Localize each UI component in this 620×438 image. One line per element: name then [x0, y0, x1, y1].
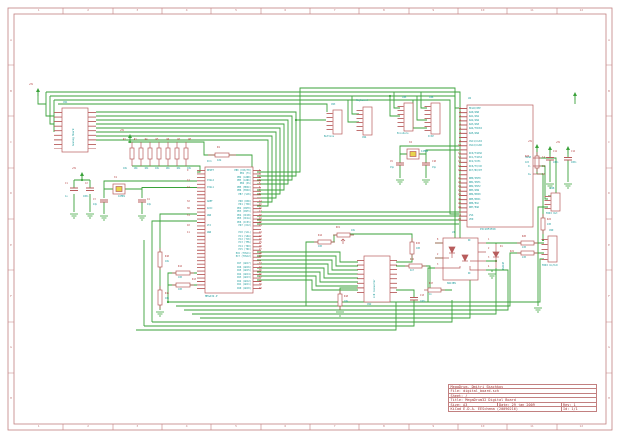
r14-ref: R14	[318, 235, 322, 237]
r20-ref: R20	[522, 236, 526, 238]
u1-pin8: 8	[437, 239, 438, 241]
resistor[interactable]	[166, 148, 170, 159]
x2-value: 12MHz	[421, 151, 428, 153]
c10-ref: C10	[432, 161, 436, 163]
r12-ref: R12	[178, 266, 182, 268]
resistor-r1[interactable]	[215, 153, 229, 157]
resistor-row-values: 10k10k10k10k10k10k10k	[123, 167, 191, 170]
crystal-x2[interactable]	[407, 149, 419, 159]
u1-pin2: 2	[437, 254, 438, 256]
title-block-rev: Rev: 1	[561, 403, 597, 407]
c13-ref: C13	[420, 295, 424, 297]
wire[interactable]	[257, 88, 459, 224]
plus5v-symbol[interactable]	[566, 146, 570, 154]
title-block-size: Size: A3	[451, 403, 497, 407]
u1-pin3: 3	[437, 264, 438, 266]
r13-ref: R13	[192, 279, 196, 281]
ic1-ref: IC1	[207, 161, 212, 164]
rv1-ref: RV1	[336, 227, 340, 229]
resistor[interactable]	[157, 148, 161, 159]
gnd-symbol[interactable]	[422, 180, 430, 184]
wire[interactable]	[257, 234, 452, 310]
plus5v-label: +5V	[72, 168, 76, 170]
r18-ref: R18	[344, 296, 348, 298]
r21-ref: R21	[510, 251, 514, 253]
cn5-value: Encoders	[397, 133, 409, 135]
u1-pin4r: 4	[488, 266, 489, 268]
c2-value: 100n	[83, 196, 88, 198]
resistor-r11[interactable]	[158, 290, 162, 305]
r17-ref: R17	[429, 283, 433, 285]
x1-ref: X1	[114, 177, 117, 179]
c3-value: 22p	[93, 204, 97, 206]
c9-ref: C9	[390, 161, 393, 163]
connector-cn5[interactable]	[404, 103, 413, 131]
gnd-symbol[interactable]	[156, 312, 164, 316]
connector-cn6[interactable]	[431, 103, 440, 134]
r10-value: 10k	[165, 261, 169, 263]
d1-value: 1N4148	[503, 262, 505, 270]
resistor-r20[interactable]	[521, 241, 534, 245]
cn1-ref: CN1	[63, 102, 67, 104]
zone-columns-bottom: 123456789101112	[14, 424, 606, 430]
r16-value: 4k7	[410, 270, 414, 272]
c12-ref: C12	[571, 151, 575, 153]
ic1-pin-numbers-right: 1234567814151617181920212223242526272829…	[259, 169, 269, 290]
rv1-value: 10k	[351, 230, 355, 232]
resistor[interactable]	[139, 148, 143, 159]
u1-value: 6N138N	[447, 283, 456, 285]
cn6-ref: CN6	[429, 97, 433, 99]
c4-ref: C4	[147, 199, 150, 201]
c4-value: 22p	[147, 204, 151, 206]
resistor-r18[interactable]	[338, 294, 342, 306]
title-block: MegaDrum, Dmitri Skachkov File: digital_…	[448, 384, 597, 412]
resistor[interactable]	[175, 148, 179, 159]
resistor[interactable]	[184, 148, 188, 159]
resistor-r16[interactable]	[409, 264, 422, 268]
plus5v-symbol[interactable]	[36, 88, 40, 96]
r1-ref: R1	[217, 147, 220, 149]
r22-value: 220	[547, 224, 551, 226]
zone-rows-right: ABCDEFGH	[606, 14, 612, 424]
ic1-pin-names-right: PB0 (XCK/T0)PB1 (T1)PB2 (AIN0)PB3 (AIN1)…	[207, 169, 251, 290]
connector-cn4[interactable]	[363, 107, 372, 135]
trimpot-rv1[interactable]	[337, 233, 350, 237]
title-block-tool-id: KiCad E.D.A. EESchema (20090216) Id: 1/1	[449, 407, 596, 412]
plus5v-symbol[interactable]	[80, 172, 84, 180]
gnd-symbol[interactable]	[70, 214, 78, 218]
plus5v-label: +5V	[556, 142, 560, 144]
c13-value: 100n	[420, 301, 425, 303]
c9-value: 15p	[390, 167, 394, 169]
r22-ref: R22	[547, 219, 551, 221]
u2-pin-numbers-right: 141516	[542, 107, 552, 223]
cn4-value: Keyboard	[356, 100, 368, 102]
cn2-ref: CN2	[367, 304, 371, 306]
cn2-value: LCD Connector	[374, 279, 376, 298]
plus5v-label: +5V	[29, 84, 33, 86]
zone-rows-left: ABCDEFGH	[8, 14, 14, 424]
u1-nc-bottom: NC	[468, 273, 471, 275]
r1-value: 10k	[217, 160, 221, 162]
c2-ref: C2	[85, 183, 88, 185]
junction-dot	[295, 119, 297, 121]
cn1-value: Analog Board	[73, 129, 75, 146]
u1-ref: U1	[452, 232, 455, 234]
u2-pin-names-right: VUSBD-D+	[487, 107, 531, 223]
r11-ref: R11	[165, 293, 169, 295]
c3-ref: C3	[93, 199, 96, 201]
c11-ref: C11	[553, 151, 557, 153]
c1-ref: C1	[65, 183, 68, 185]
r11-value: 10k	[165, 298, 169, 300]
resistor-row-refs: R2R3R4R5R6R7R8	[123, 138, 191, 141]
gnd-symbol[interactable]	[138, 216, 146, 220]
resistor-r21[interactable]	[521, 251, 534, 255]
c12-value: 100n	[571, 162, 576, 164]
title-block-date: Date: 29 jan 2009	[497, 403, 561, 407]
cn3-ref: CN3	[331, 104, 335, 106]
gnd-symbol[interactable]	[396, 180, 404, 184]
r13-value: 100	[178, 289, 182, 291]
ic1-pin-numbers-left: 912133230311011	[187, 169, 196, 290]
r23-ref: R23	[525, 156, 529, 158]
u1-nc-top: NC	[468, 240, 471, 242]
c11-value: 100n	[553, 162, 558, 164]
r15-value: 100	[416, 248, 420, 250]
r23-value: 1k5	[525, 162, 529, 164]
r14-value: 100	[318, 246, 322, 248]
r16-ref: R16	[410, 259, 414, 261]
u2-pin-numbers-left: 123456791011121317182122232425262728820	[449, 107, 461, 223]
gnd-symbol[interactable]	[534, 308, 542, 312]
plus5v-label: +5V	[528, 141, 532, 143]
d1-diode[interactable]	[493, 244, 499, 268]
resistor-r17[interactable]	[428, 288, 441, 292]
r18-value: 10k	[344, 301, 348, 303]
plus5v-symbol[interactable]	[573, 92, 577, 100]
resistor[interactable]	[130, 148, 134, 159]
gnd-symbol[interactable]	[564, 184, 572, 188]
cn8-ref: CN8	[550, 188, 554, 190]
x2-ref: X2	[409, 142, 412, 144]
resistor-r10[interactable]	[158, 252, 162, 267]
u2-ref: U2	[468, 98, 471, 101]
u1-optocoupler[interactable]	[435, 238, 486, 280]
resistor-r15[interactable]	[410, 242, 414, 254]
schematic-sheet: 123456789101112 123456789101112 ABCDEFGH…	[0, 0, 620, 438]
junction-dot	[389, 95, 391, 97]
x1-value: 16MHz	[118, 196, 125, 198]
connector-cn3[interactable]	[333, 110, 342, 134]
cn3-value: Buttons	[324, 136, 334, 138]
cn9-value: MIDI In/Out	[542, 265, 558, 267]
resistor-r14[interactable]	[318, 240, 331, 244]
cn6-value: ICSP	[428, 136, 434, 138]
plus5v-label: +5V	[120, 130, 124, 132]
crystal-x1[interactable]	[113, 184, 125, 194]
gnd-symbol[interactable]	[100, 216, 108, 220]
zone-columns-top: 123456789101112	[14, 8, 606, 14]
c1-value: 1u	[65, 196, 68, 198]
cn9-ref: CN9	[549, 230, 553, 232]
cn4-ref: CN4	[362, 137, 366, 139]
r10-ref: R10	[165, 256, 169, 258]
ic1-value: MEGA32-P	[205, 296, 218, 299]
resistor[interactable]	[148, 148, 152, 159]
r21-value: 220	[522, 257, 526, 259]
plus5v-symbol[interactable]	[535, 144, 539, 152]
title-block-tool: KiCad E.D.A. EESchema (20090216)	[451, 407, 561, 412]
junction-dot	[167, 301, 169, 303]
u1-pin3r: 3	[488, 257, 489, 259]
cn5-ref: CN5	[402, 97, 406, 99]
connector-cn9[interactable]	[548, 236, 557, 262]
c10-value: 15p	[432, 167, 436, 169]
u2-value: PIC18F2550	[480, 229, 496, 232]
r17-value: 1k	[429, 294, 432, 296]
r12-value: 100	[178, 277, 182, 279]
gnd-symbol[interactable]	[488, 274, 496, 278]
connector-cn8[interactable]	[551, 193, 560, 211]
d1-ref: D1	[500, 246, 503, 248]
connector-cn2-lcd[interactable]	[364, 256, 390, 302]
trimpot-arrow	[341, 239, 345, 244]
r20-value: 220	[522, 247, 526, 249]
title-block-id: Id: 1/1	[561, 407, 597, 412]
gnd-symbol[interactable]	[86, 214, 94, 218]
r15-ref: R15	[416, 243, 420, 245]
cn8-value: MIDI Out	[546, 213, 558, 215]
u1-pin2r: 2	[488, 248, 489, 250]
u1-pin1r: 1	[488, 239, 489, 241]
